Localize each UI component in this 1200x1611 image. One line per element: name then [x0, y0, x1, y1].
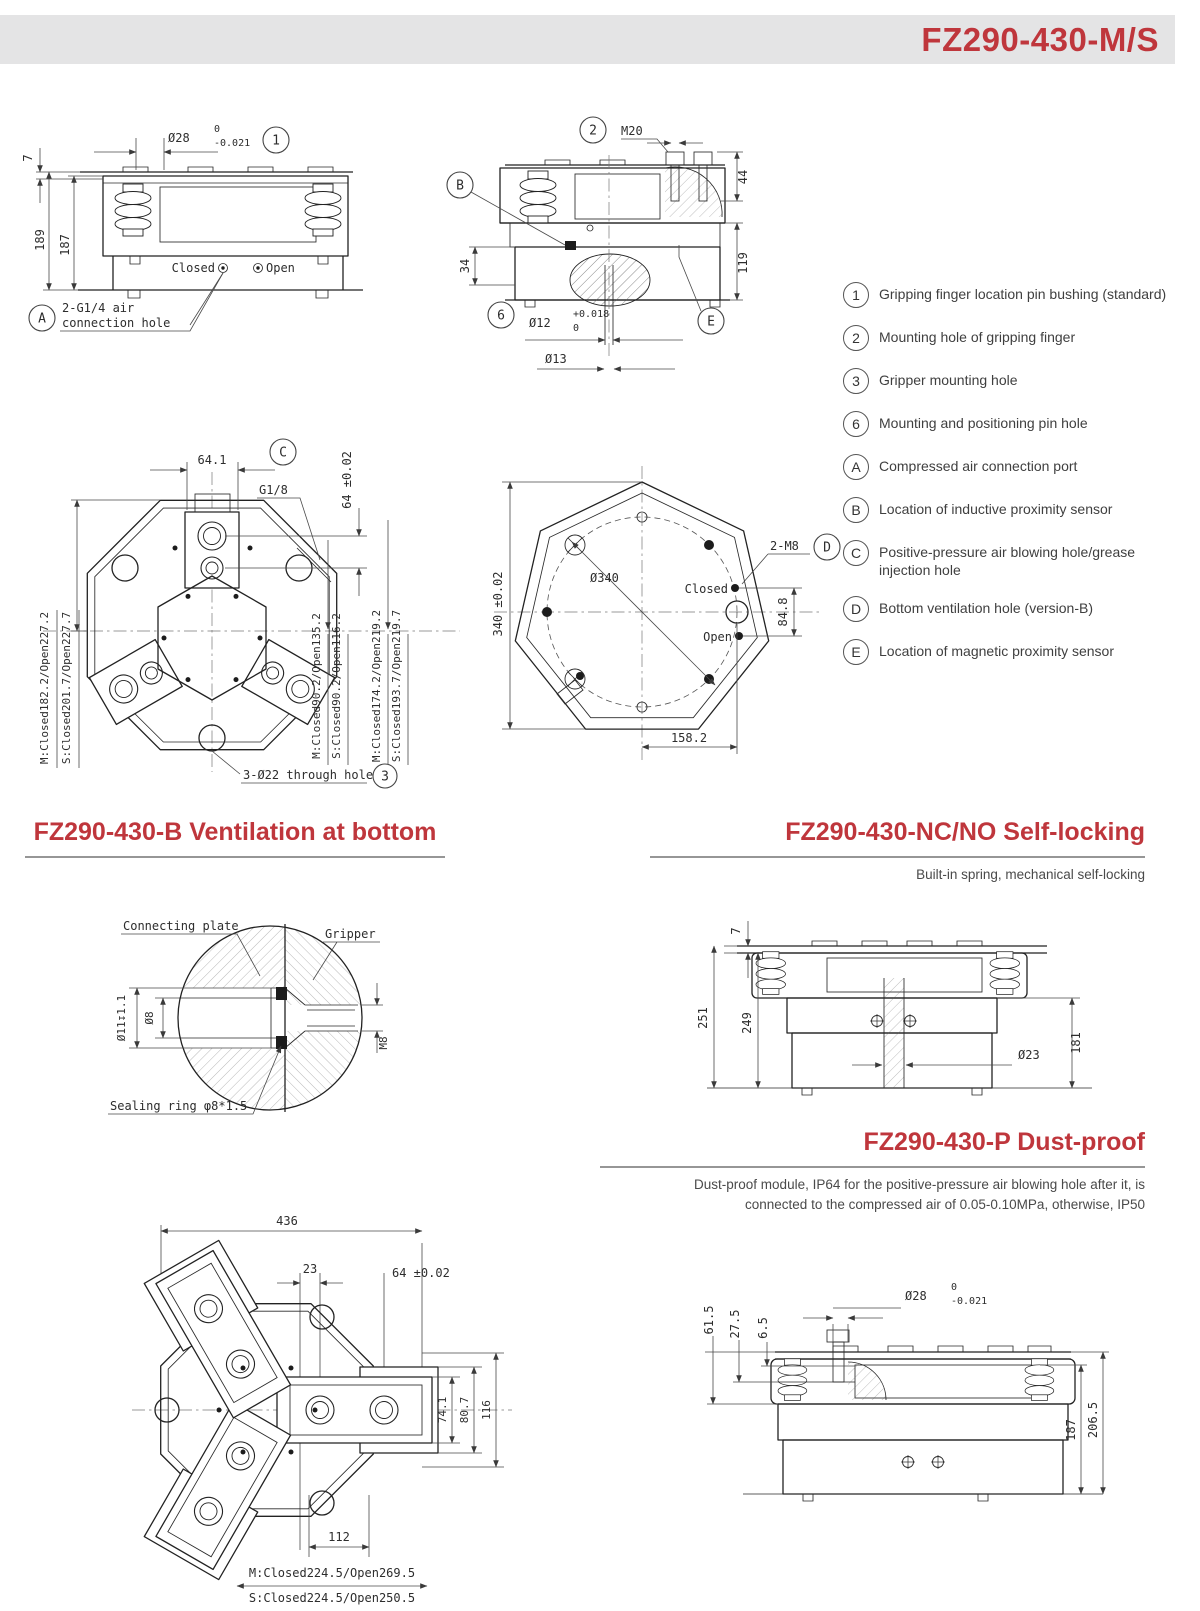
- svg-text:E: E: [707, 315, 715, 330]
- thread-g18: G1/8: [259, 483, 288, 497]
- dim-dia28-tol-dn: -0.021: [951, 1296, 987, 1307]
- dim-dia13: Ø13: [545, 352, 567, 366]
- stroke-left-m: M:Closed182.2/Open227.2: [38, 612, 51, 764]
- legend-text: Location of magnetic proximity sensor: [879, 639, 1114, 660]
- balloon-d: D: [814, 534, 840, 560]
- bellows-left: [756, 952, 786, 995]
- dim-d8: Ø8: [143, 1011, 156, 1024]
- dim-dia28: Ø28: [168, 131, 190, 145]
- dim-189: 189: [33, 229, 47, 251]
- label-2m8: 2-M8: [770, 539, 799, 553]
- section-b-header: FZ290-430-B Ventilation at bottom: [25, 818, 445, 858]
- dim-64: 64 ±0.02: [392, 1266, 450, 1280]
- balloon-6: 6: [488, 302, 514, 328]
- legend-item: CPositive-pressure air blowing hole/grea…: [843, 540, 1175, 579]
- through-hole: [112, 555, 138, 581]
- legend-text: Bottom ventilation hole (version-B): [879, 596, 1093, 617]
- balloon-3: 3: [373, 764, 397, 788]
- balloon-c: C: [270, 439, 296, 465]
- air-hole-label-1: 2-G1/4 air: [62, 301, 134, 315]
- thread-m20: M20: [621, 124, 643, 138]
- svg-text:6: 6: [497, 309, 505, 324]
- through-hole-label: 3-Ø22 through hole: [243, 768, 373, 782]
- dim-dia28-tol-up: 0: [951, 1282, 957, 1293]
- dim-249: 249: [740, 1012, 754, 1034]
- dim-187: 187: [58, 234, 72, 256]
- legend-text: Positive-pressure air blowing hole/greas…: [879, 540, 1175, 579]
- svg-text:3: 3: [381, 770, 389, 785]
- legend-text: Gripper mounting hole: [879, 368, 1018, 389]
- page-title: FZ290-430-M/S: [921, 21, 1159, 59]
- dim-dia12-tol-up: +0.018: [573, 309, 609, 320]
- dim-251: 251: [696, 1007, 710, 1029]
- sealing-ring-top: [276, 987, 287, 1000]
- balloon-2: 2: [580, 117, 606, 143]
- legend-item: ACompressed air connection port: [843, 454, 1175, 480]
- dim-275: 27.5: [728, 1310, 742, 1339]
- section-p-subtitle-line1: Dust-proof module, IP64 for the positive…: [694, 1177, 1145, 1192]
- p-side-view-drawing: Ø28 0 -0.021 61.5 27.5 6.5 187 206.5: [683, 1262, 1120, 1554]
- legend-item: 6Mounting and positioning pin hole: [843, 411, 1175, 437]
- svg-text:2: 2: [589, 124, 597, 139]
- legend-text: Location of inductive proximity sensor: [879, 497, 1112, 518]
- bellows-left: [778, 1359, 807, 1401]
- header-banner: FZ290-430-M/S: [0, 15, 1175, 64]
- section-p-title: FZ290-430-P Dust-proof: [600, 1128, 1145, 1168]
- dim-44: 44: [736, 170, 750, 184]
- legend-text: Mounting hole of gripping finger: [879, 325, 1075, 346]
- section-nc-subtitle: Built-in spring, mechanical self-locking: [650, 865, 1145, 885]
- finger: [277, 1367, 438, 1453]
- dim-187: 187: [1064, 1419, 1078, 1441]
- bellows-left: [115, 184, 151, 236]
- section-p-subtitle: Dust-proof module, IP64 for the positive…: [600, 1175, 1145, 1214]
- stroke-label-m: M:Closed224.5/Open269.5: [249, 1566, 415, 1580]
- connecting-plate-label: Connecting plate: [123, 919, 239, 933]
- p-top-view-drawing: 436 23 64 ±0.02 74.1 80.7 116 112 M:Clos…: [92, 1195, 524, 1607]
- gripper-label: Gripper: [325, 927, 376, 941]
- section-p-subtitle-line2: connected to the compressed air of 0.05-…: [745, 1197, 1145, 1212]
- open-label: Open: [703, 630, 732, 644]
- stroke-right1-s: S:Closed90.2/Open116.2: [330, 613, 343, 759]
- sealing-ring-bottom: [276, 1036, 287, 1049]
- bottom-view-drawing: Ø340 340 ±0.02 2-M8 D Closed Open 84.8 1…: [472, 452, 850, 777]
- dim-23: 23: [303, 1262, 317, 1276]
- legend-text: Mounting and positioning pin hole: [879, 411, 1088, 432]
- dim-848: 84.8: [776, 598, 790, 627]
- closed-label: Closed: [685, 582, 728, 596]
- dim-34: 34: [458, 259, 472, 273]
- open-label: Open: [266, 261, 295, 275]
- section-b-title: FZ290-430-B Ventilation at bottom: [25, 818, 445, 858]
- nc-side-view-drawing: 7 251 249 181 Ø23: [652, 893, 1120, 1111]
- dim-181: 181: [1069, 1032, 1083, 1054]
- stroke-left-s: S:Closed201.7/Open227.7: [60, 612, 73, 764]
- section-view-drawing: 2 M20 44 119 B 34 6 Ø12 +0.018 0 Ø13: [425, 95, 760, 380]
- legend-symbol: 3: [843, 368, 869, 394]
- dim-dia28-tol-up: 0: [214, 124, 220, 135]
- bellows-right: [990, 952, 1020, 995]
- dim-dia28-tol-dn: -0.021: [214, 138, 250, 149]
- dim-436: 436: [276, 1214, 298, 1228]
- legend: 1Gripping finger location pin bushing (s…: [843, 282, 1175, 682]
- inductive-sensor: [565, 241, 576, 250]
- open-dot: [735, 632, 743, 640]
- legend-item: 3Gripper mounting hole: [843, 368, 1175, 394]
- legend-item: 2Mounting hole of gripping finger: [843, 325, 1175, 351]
- dim-64-1: 64.1: [198, 453, 227, 467]
- section-nc-header: FZ290-430-NC/NO Self-locking Built-in sp…: [650, 818, 1145, 885]
- dim-340: 340 ±0.02: [491, 571, 505, 636]
- legend-symbol: 2: [843, 325, 869, 351]
- dim-64: 64 ±0.02: [340, 451, 354, 509]
- dim-7: 7: [729, 927, 743, 934]
- dim-112: 112: [328, 1530, 350, 1544]
- balloon-e: E: [698, 308, 724, 334]
- svg-text:C: C: [279, 446, 287, 461]
- stroke-right1-m: M:Closed90.2/Open135.2: [310, 613, 323, 759]
- legend-item: ELocation of magnetic proximity sensor: [843, 639, 1175, 665]
- legend-item: BLocation of inductive proximity sensor: [843, 497, 1175, 523]
- dim-dia340: Ø340: [590, 571, 619, 585]
- dim-dia23: Ø23: [1018, 1048, 1040, 1062]
- datasheet-page: FZ290-430-M/S Closed Open 7 189 187 Ø28 …: [0, 0, 1200, 1611]
- dim-m8: M8: [377, 1036, 390, 1049]
- svg-text:1: 1: [272, 134, 280, 149]
- dim-807: 80.7: [458, 1397, 471, 1424]
- balloon-a: A: [29, 305, 55, 331]
- balloon-1: 1: [263, 127, 289, 153]
- section-nc-title: FZ290-430-NC/NO Self-locking: [650, 818, 1145, 858]
- finger-bolts: [665, 152, 722, 217]
- vent-detail-drawing: Connecting plate Gripper Ø11↧1.1 Ø8 M8 S…: [75, 888, 415, 1123]
- legend-text: Gripping finger location pin bushing (st…: [879, 282, 1166, 303]
- legend-symbol: 6: [843, 411, 869, 437]
- legend-item: 1Gripping finger location pin bushing (s…: [843, 282, 1175, 308]
- legend-symbol: 1: [843, 282, 869, 308]
- legend-item: DBottom ventilation hole (version-B): [843, 596, 1175, 622]
- front-view-drawing: Closed Open 7 189 187 Ø28 0 -0.021 1 A 2…: [18, 100, 418, 350]
- section-p-header: FZ290-430-P Dust-proof Dust-proof module…: [600, 1128, 1145, 1214]
- dim-65: 6.5: [756, 1317, 770, 1339]
- dim-119: 119: [736, 252, 750, 274]
- dim-dia12-tol-dn: 0: [573, 323, 579, 334]
- bellows: [520, 171, 556, 223]
- bellows-right: [305, 184, 341, 236]
- dim-dia12: Ø12: [529, 316, 551, 330]
- sealing-ring-label: Sealing ring φ8*1.5: [110, 1099, 247, 1113]
- dim-1582: 158.2: [671, 731, 707, 745]
- stroke-right2-s: S:Closed193.7/Open219.7: [390, 610, 403, 762]
- dim-7: 7: [21, 154, 35, 161]
- dim-741: 74.1: [436, 1397, 449, 1424]
- dim-615: 61.5: [702, 1306, 716, 1335]
- dim-2065: 206.5: [1086, 1402, 1100, 1438]
- dim-dia28: Ø28: [905, 1289, 927, 1303]
- svg-text:A: A: [38, 312, 46, 327]
- balloon-b: B: [447, 172, 473, 198]
- top-view-drawing: 64.1 C G1/8 64 ±0.02 M:Closed182.2/Open2…: [15, 420, 465, 800]
- legend-text: Compressed air connection port: [879, 454, 1077, 475]
- svg-text:B: B: [456, 179, 464, 194]
- closed-dot: [731, 584, 739, 592]
- air-hole-label-2: connection hole: [62, 316, 170, 330]
- dim-116: 116: [480, 1400, 493, 1420]
- stroke-right2-m: M:Closed174.2/Open219.2: [370, 610, 383, 762]
- svg-text:D: D: [823, 541, 831, 556]
- closed-label: Closed: [172, 261, 215, 275]
- stroke-label-s: S:Closed224.5/Open250.5: [249, 1591, 415, 1605]
- dim-d11: Ø11↧1.1: [115, 995, 128, 1041]
